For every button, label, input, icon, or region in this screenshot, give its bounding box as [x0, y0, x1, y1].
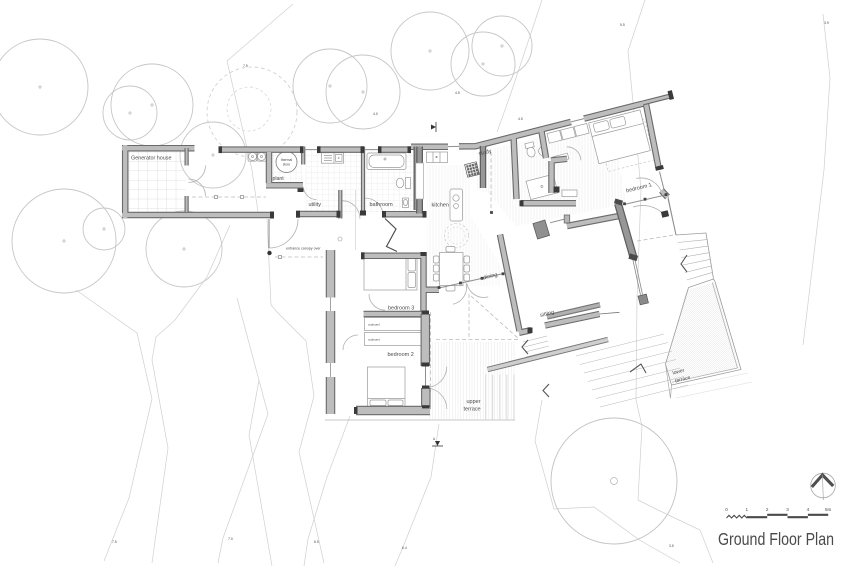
- svg-text:terrace: terrace: [464, 407, 481, 413]
- svg-text:4.5: 4.5: [455, 91, 460, 95]
- svg-text:3.9: 3.9: [824, 21, 829, 25]
- svg-text:6.5: 6.5: [314, 540, 319, 544]
- svg-text:0: 0: [725, 507, 728, 512]
- svg-text:6.4: 6.4: [402, 546, 407, 550]
- svg-text:4: 4: [807, 507, 810, 512]
- svg-text:plant: plant: [273, 176, 285, 182]
- svg-text:7.0: 7.0: [228, 537, 233, 541]
- svg-text:cupboard: cupboard: [368, 338, 380, 342]
- svg-text:4.0: 4.0: [373, 112, 378, 116]
- svg-text:2: 2: [766, 507, 769, 512]
- svg-text:store: store: [283, 163, 291, 167]
- svg-text:kitchen: kitchen: [432, 203, 449, 209]
- svg-text:bedroom 3: bedroom 3: [388, 306, 414, 312]
- svg-text:7.5: 7.5: [112, 540, 117, 544]
- svg-text:3.5: 3.5: [669, 544, 674, 548]
- svg-text:utility: utility: [309, 202, 322, 208]
- svg-text:cupboard: cupboard: [368, 323, 380, 327]
- svg-text:upper: upper: [467, 399, 481, 405]
- svg-text:bedroom 2: bedroom 2: [388, 352, 414, 358]
- svg-text:Ground Floor Plan: Ground Floor Plan: [718, 529, 834, 549]
- svg-text:4.5: 4.5: [518, 117, 523, 121]
- svg-text:entrance canopy over: entrance canopy over: [286, 247, 321, 251]
- svg-text:1: 1: [746, 507, 749, 512]
- svg-text:Generator house: Generator house: [131, 156, 171, 162]
- svg-text:thermal: thermal: [281, 158, 293, 162]
- svg-text:5.5: 5.5: [620, 23, 625, 27]
- svg-text:bathroom: bathroom: [370, 202, 394, 208]
- svg-text:5m: 5m: [825, 507, 832, 512]
- svg-text:3: 3: [786, 507, 789, 512]
